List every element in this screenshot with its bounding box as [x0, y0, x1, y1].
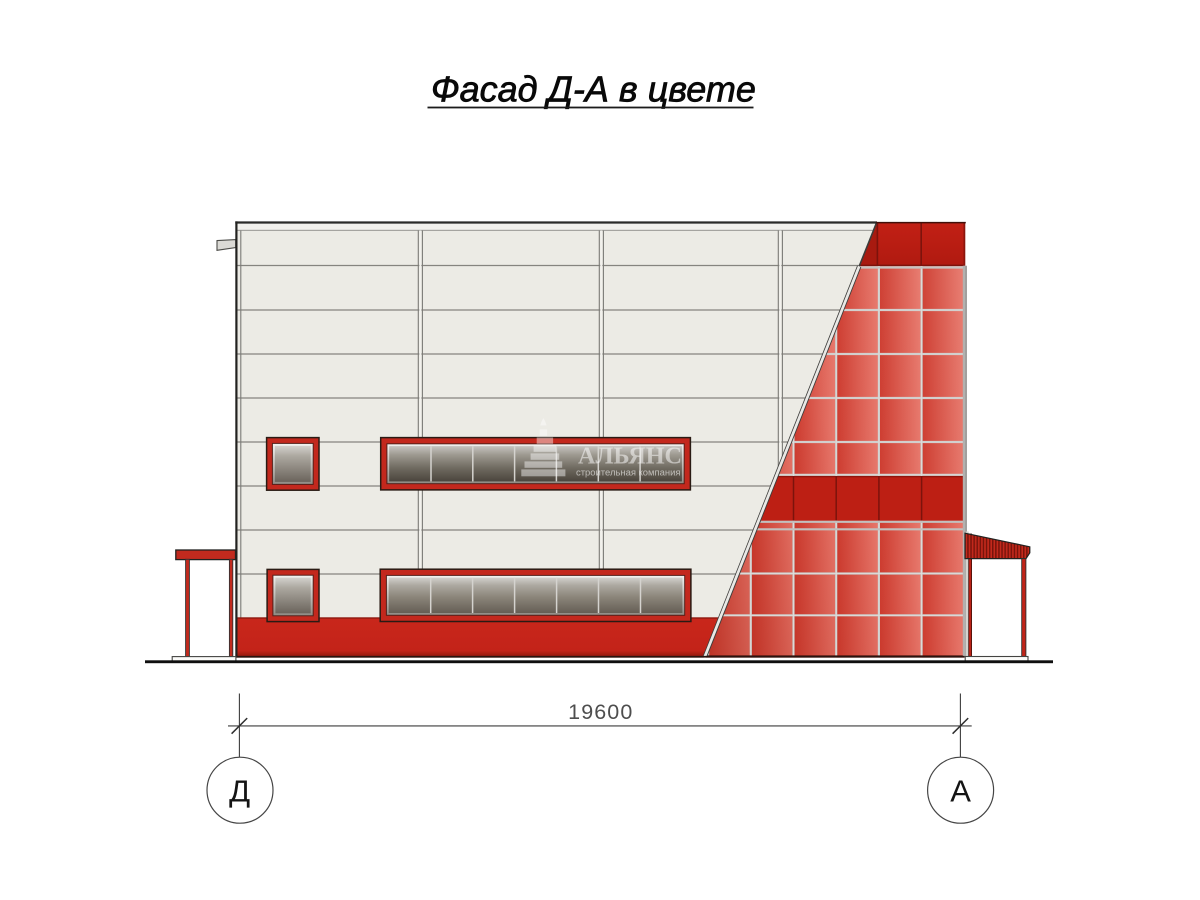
svg-text:строительная компания: строительная компания [576, 467, 681, 478]
svg-text:Д: Д [229, 774, 250, 809]
svg-text:Фасад Д-А в цвете: Фасад Д-А в цвете [431, 69, 756, 110]
svg-text:19600: 19600 [568, 700, 633, 724]
svg-text:А: А [950, 774, 971, 809]
svg-text:АЛЬЯНС: АЛЬЯНС [578, 444, 682, 470]
